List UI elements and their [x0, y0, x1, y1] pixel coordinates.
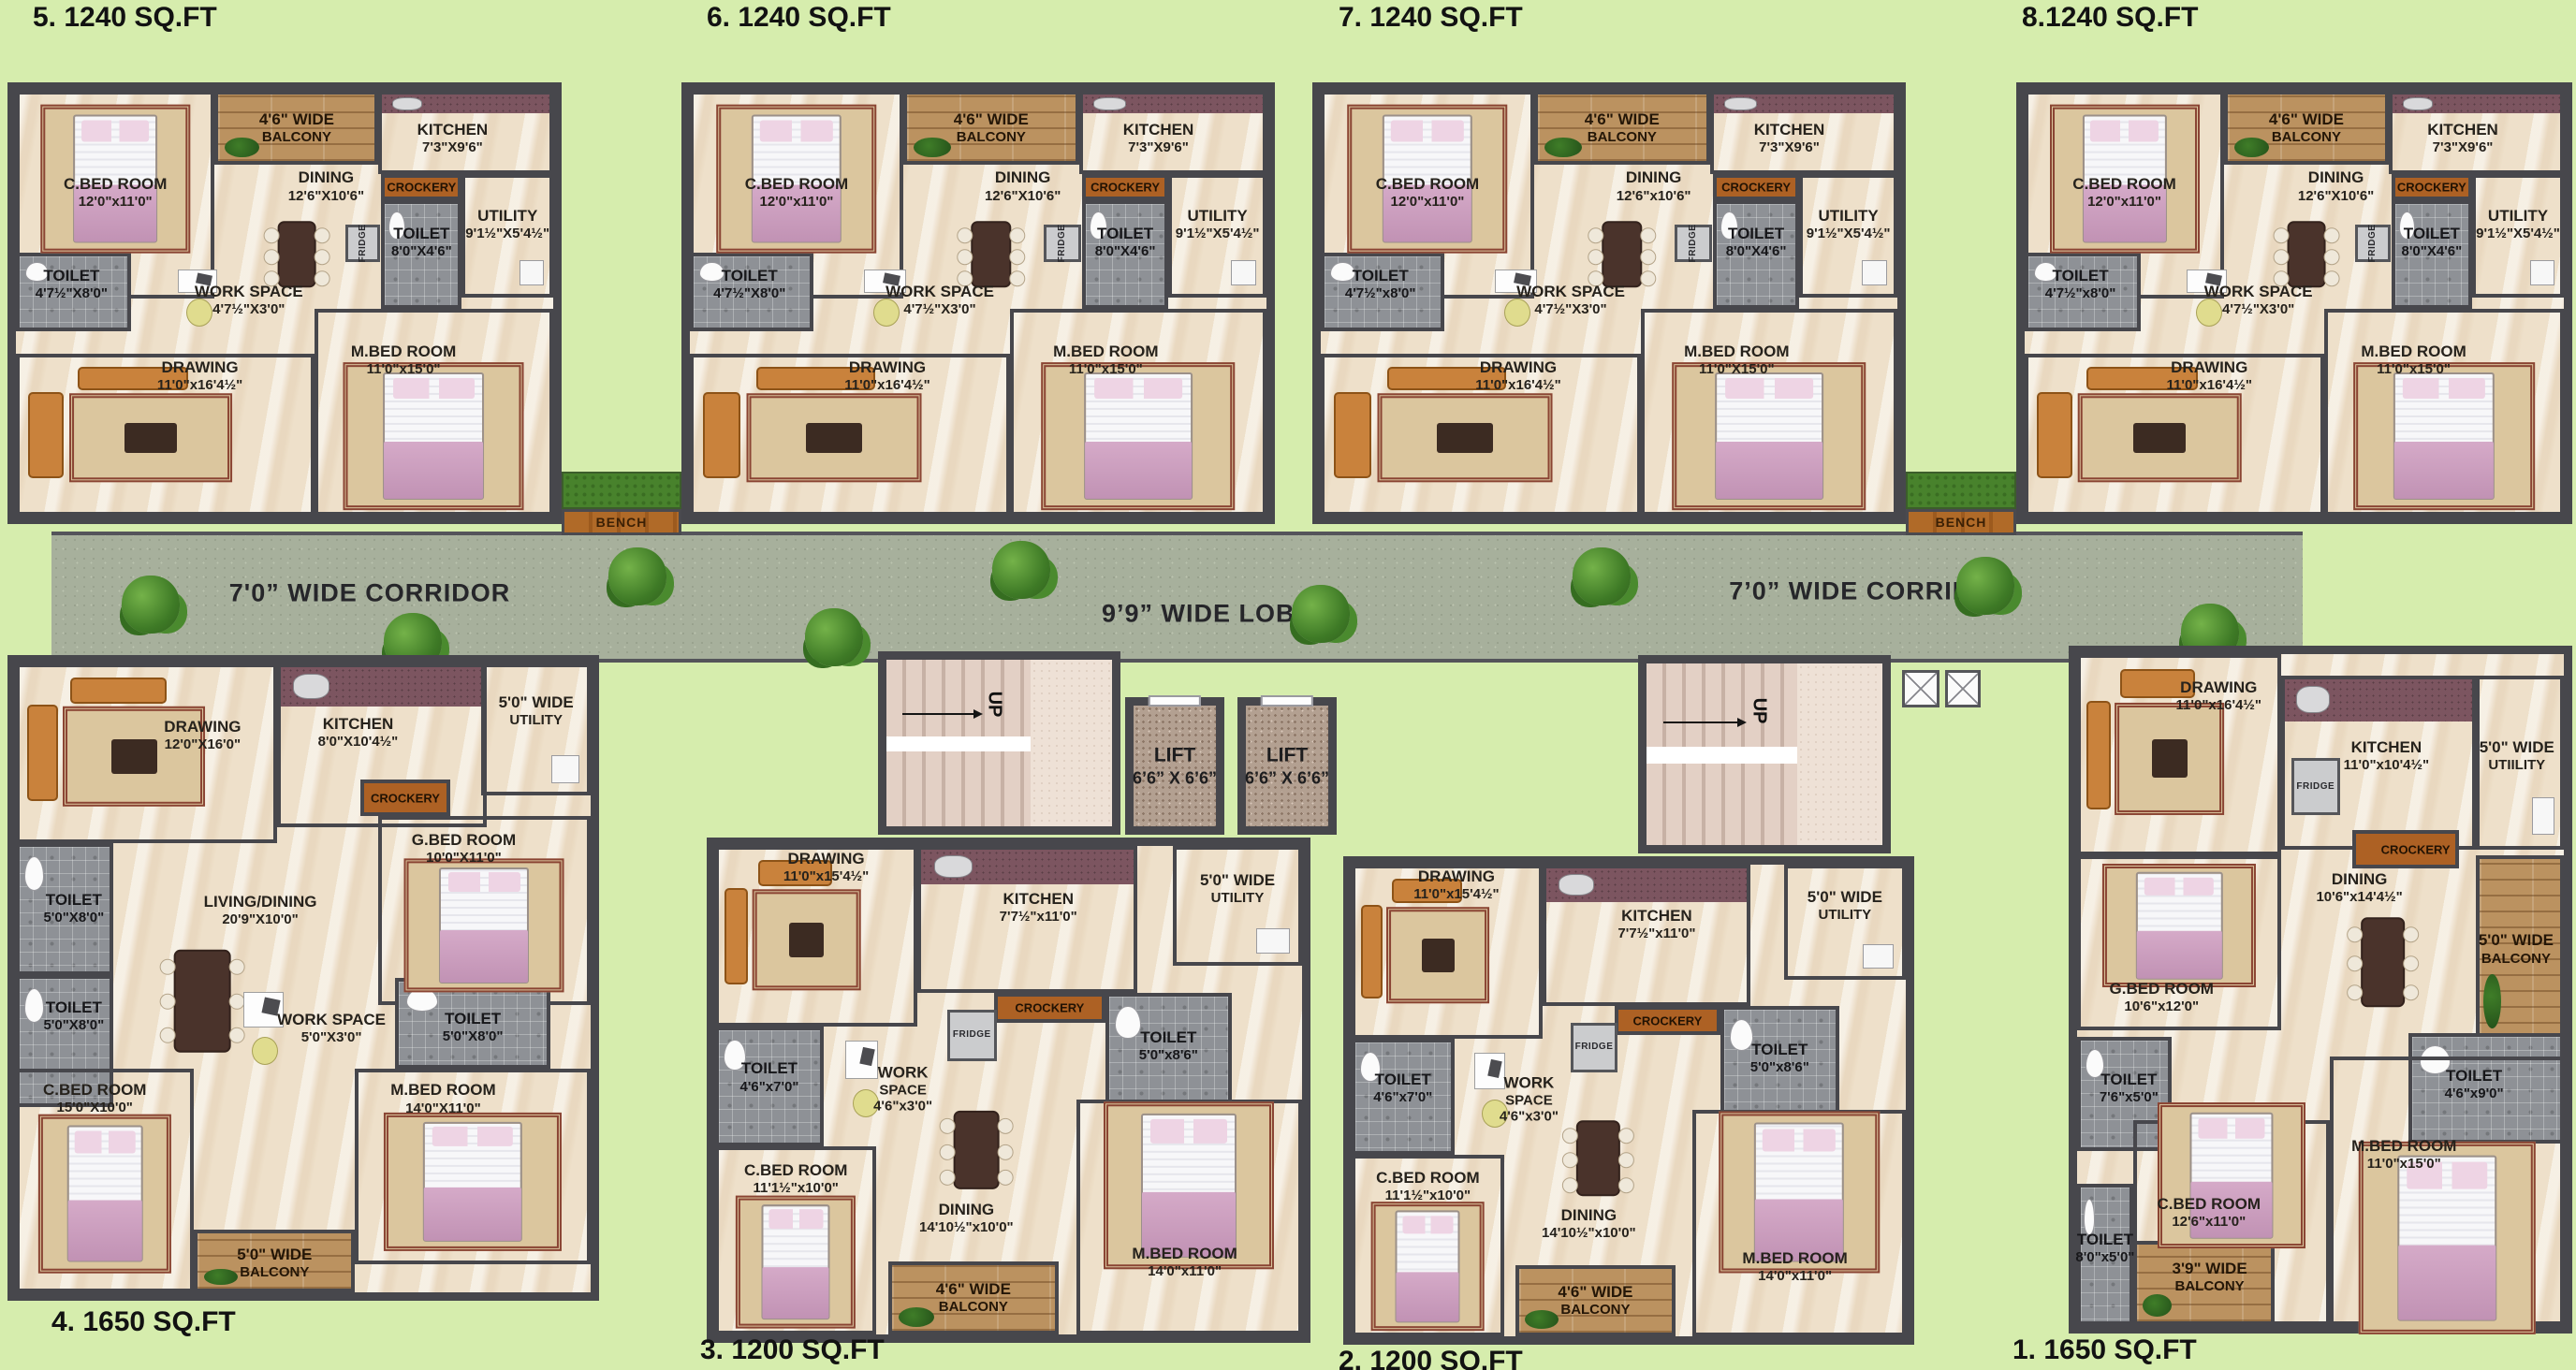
work-space-line-2: 5'0"X3'0": [277, 1030, 386, 1047]
g-bed-room-line-1: G.BED ROOM: [2110, 980, 2214, 998]
chair: [940, 1144, 956, 1160]
chair: [2323, 270, 2339, 286]
toilet-2-label: TOILET4'6"x9'0": [2445, 1067, 2504, 1102]
chair: [1562, 1177, 1578, 1193]
toilet-left-label: TOILET4'7½"x8'0": [1345, 267, 1416, 302]
unit-5-utility: UTILITY9'1½"X5'4½": [461, 174, 553, 298]
toilet-1-line-1: TOILET: [2100, 1071, 2159, 1089]
kitchen-line-2: 7'3"X9'6": [417, 139, 489, 156]
coffee-table: [111, 739, 157, 774]
toilet-left-label: TOILET4'7½"x8'0": [2045, 267, 2116, 302]
chair: [1588, 227, 1603, 243]
crockery-line-1: CROCKERY: [1632, 1013, 1702, 1027]
dining-table: [1576, 1120, 1619, 1197]
fridge-line-1: FRIDGE: [1575, 1042, 1614, 1053]
drawing-line-1: DRAWING: [164, 719, 241, 737]
balcony-label: 4'6" WIDEBALCONY: [2269, 110, 2344, 146]
utility-label: 5'0" WIDEUTILITY: [1808, 889, 1882, 925]
kitchen-label: KITCHEN7'7½"x11'0": [1000, 891, 1077, 926]
m-bed-room-line-1: M.BED ROOM: [1053, 342, 1158, 361]
balcony-1-line-2: BALCONY: [2479, 951, 2554, 968]
kitchen-line-2: 7'3"X9'6": [1123, 139, 1194, 156]
m-bed-room-line-2: 14'0"x11'0": [1132, 1263, 1237, 1280]
unit-2-utility: 5'0" WIDEUTILITY: [1784, 865, 1906, 980]
sofa: [28, 392, 63, 478]
toilet-2-line-2: 4'6"x9'0": [2445, 1086, 2504, 1102]
dining-line-2: 12'6"X10'6": [2298, 188, 2374, 205]
unit-5-crockery: CROCKERY: [381, 174, 461, 199]
fridge-line-1: FRIDGE: [2296, 781, 2334, 793]
c-bed-room-line-2: 12'0"x11'0": [2072, 194, 2176, 211]
dining-line-2: 14'10½"x10'0": [1542, 1225, 1636, 1242]
toilet-2-line-1: TOILET: [2445, 1067, 2504, 1086]
unit-8-toilet-left: TOILET4'7½"x8'0": [2025, 253, 2141, 331]
toilet-3-line-2: 8'0"x5'0": [2075, 1249, 2134, 1266]
crockery-line-1: CROCKERY: [1015, 1000, 1084, 1014]
toilet-left-line-2: 4'6"x7'0": [739, 1079, 798, 1096]
coffee-table: [1437, 423, 1493, 454]
drawing-line-1: DRAWING: [844, 358, 929, 377]
crockery-line-1: CROCKERY: [1721, 180, 1791, 194]
balcony-label: 4'6" WIDEBALCONY: [954, 110, 1029, 146]
lift-size: 6’6” X 6’6”: [1133, 767, 1217, 789]
bed: [762, 1204, 830, 1320]
kitchen-line-1: KITCHEN: [1754, 121, 1825, 139]
grass-strip: [1906, 472, 2016, 509]
sofa: [27, 705, 58, 801]
lift-door: [1261, 695, 1313, 707]
c-bed-room-line-2: 11'1½"x10'0": [744, 1180, 848, 1197]
toilet-right-line-1: TOILET: [1750, 1041, 1809, 1059]
utility-label: UTILITY9'1½"X5'4½": [465, 207, 549, 242]
work-space-line-1: WORK SPACE: [195, 283, 303, 301]
balcony-line-2: BALCONY: [1585, 129, 1660, 146]
balcony-line-2: BALCONY: [936, 1299, 1011, 1316]
kitchen-label: KITCHEN7'3"X9'6": [1754, 121, 1825, 156]
work-space-line-1: WORK SPACE: [1516, 283, 1625, 301]
bed: [423, 1122, 522, 1242]
kitchen-label: KITCHEN7'3"X9'6": [2427, 121, 2498, 156]
chair: [997, 1170, 1013, 1186]
bed: [2397, 1155, 2495, 1320]
toilet-3-line-1: TOILET: [2075, 1231, 2134, 1249]
g-bed-room-line-1: G.BED ROOM: [412, 831, 516, 850]
m-bed-room-line-2: 11'0"x15'0": [1053, 361, 1158, 378]
balcony-line-1: 5'0" WIDE: [237, 1246, 312, 1264]
tree-icon: [608, 547, 666, 605]
dining-label: DINING12'6"X10'6": [985, 169, 1061, 205]
utility-line-2: 9'1½"X5'4½": [465, 226, 549, 242]
drawing-line-2: 11'0"x16'4½": [157, 377, 242, 394]
work-space-line-1: WORK SPACE: [2204, 283, 2313, 301]
drawing-line-2: 11'0"x16'4½": [1475, 377, 1560, 394]
drawing-label: DRAWING11'0"x16'4½": [157, 358, 242, 394]
chair: [2347, 926, 2363, 942]
floor-plan-canvas: 7'0” WIDE CORRIDOR 9’9” WIDE LOBBY 7’0” …: [0, 0, 2576, 1370]
dining-label: DINING14'10½"x10'0": [919, 1201, 1014, 1236]
dining-table: [2361, 918, 2406, 1007]
toilet-left-label: TOILET4'7½"X8'0": [713, 267, 785, 302]
g-bed-room-line-2: 10'6"x12'0": [2110, 998, 2214, 1015]
tree-icon: [122, 576, 180, 634]
unit-7-utility: UTILITY9'1½"X5'4½": [1799, 174, 1897, 298]
unit-8-drawing: DRAWING11'0"x16'4½": [2025, 354, 2324, 516]
chair: [160, 993, 176, 1009]
toilet-right-line-1: TOILET: [1139, 1028, 1198, 1047]
fridge-label: FRIDGE: [953, 1029, 991, 1041]
sofa: [70, 678, 167, 704]
m-bed-room-line-1: M.BED ROOM: [2361, 342, 2466, 361]
toilet-left-line-2: 4'7½"X8'0": [713, 285, 785, 302]
chair: [1618, 1153, 1634, 1169]
unit-3-toilet-left: TOILET4'6"x7'0": [715, 1027, 824, 1146]
toilet-top-line-1: TOILET: [1095, 225, 1156, 243]
drawing-line-1: DRAWING: [157, 358, 242, 377]
m-bed-room-label: M.BED ROOM14'0"x11'0": [1132, 1245, 1237, 1280]
dining-line-2: 12'6"x10'6": [1617, 188, 1691, 205]
drawing-label: DRAWING11'0"x15'4½": [783, 850, 869, 885]
m-bed-room-label: M.BED ROOM14'0"X11'0": [390, 1082, 495, 1117]
lift-1-label: LIFT 6’6” X 6’6”: [1133, 743, 1217, 789]
bed: [1084, 372, 1193, 500]
toilet-left-line-1: TOILET: [1373, 1071, 1432, 1089]
toilet-top-line-1: TOILET: [2401, 225, 2462, 243]
unit-4: DRAWING12'0"X16'0"KITCHEN8'0"X10'4½"5'0"…: [7, 655, 599, 1301]
balcony-line-2: BALCONY: [237, 1265, 312, 1282]
crockery-label: CROCKERY: [2397, 180, 2466, 194]
utility-line-2: UTIILITY: [2480, 757, 2554, 774]
unit-5-toilet-top: TOILET8'0"X4'6": [381, 200, 461, 309]
balcony-line-1: 4'6" WIDE: [936, 1280, 1011, 1299]
unit-6-toilet-top: TOILET8'0"X4'6": [1082, 200, 1168, 309]
chair: [1010, 270, 1026, 286]
unit-1-balcony-1: 5'0" WIDEBALCONY: [2476, 855, 2564, 1043]
drawing-label: DRAWING11'0"x16'4½": [844, 358, 929, 394]
drawing-line-2: 11'0"x15'4½": [783, 868, 869, 885]
utility-line-1: 5'0" WIDE: [2480, 738, 2554, 757]
unit-7-m-bed-room: M.BED ROOM11'0"X15'0": [1641, 309, 1897, 516]
kitchen-label: KITCHEN11'0"x10'4½": [2344, 738, 2429, 774]
unit-1-dining: DINING10'6"x14'4½": [2281, 855, 2476, 1050]
toilet-top-label: TOILET8'0"X4'6": [1095, 225, 1156, 260]
fridge-label: FRIDGE: [2367, 225, 2378, 263]
m-bed-room-line-2: 11'0"x15'0": [2361, 361, 2466, 378]
toilet-top-line-2: 8'0"X4'6": [2401, 243, 2462, 260]
chair: [160, 959, 176, 975]
lift-2-label: LIFT 6’6” X 6’6”: [1245, 743, 1329, 789]
toilet-top-line-2: 8'0"X4'6": [1726, 243, 1787, 260]
kitchen-line-2: 8'0"X10'4½": [318, 734, 399, 751]
unit-3-balcony: 4'6" WIDEBALCONY: [888, 1261, 1059, 1334]
unit-6: C.BED ROOM12'0"x11'0"4'6" WIDEBALCONYKIT…: [681, 82, 1275, 524]
unit-6-m-bed-room: M.BED ROOM11'0"x15'0": [1010, 309, 1266, 516]
utility-label: 5'0" WIDEUTILITY: [499, 693, 574, 729]
balcony-label: 4'6" WIDEBALCONY: [1585, 110, 1660, 146]
dining-line-1: DINING: [919, 1201, 1014, 1219]
bench-label: BENCH: [596, 515, 648, 530]
fridge-line-1: FRIDGE: [358, 225, 369, 263]
work-space-label: WORK SPACE4'7½"X3'0": [2204, 283, 2313, 318]
unit-3-utility: 5'0" WIDEUTILITY: [1173, 846, 1302, 966]
dining-line-1: DINING: [2298, 169, 2374, 188]
fridge-label: FRIDGE: [2296, 781, 2334, 793]
toilet-left-line-2: 4'7½"X8'0": [36, 285, 108, 302]
living-dining-label: LIVING/DINING20'9"X10'0": [204, 893, 317, 928]
unit-6-drawing: DRAWING11'0"x16'4½": [690, 354, 1010, 516]
toilet-top-label: TOILET8'0"X4'6": [391, 225, 452, 260]
drawing-line-1: DRAWING: [1413, 867, 1499, 886]
toilet-left-line-1: TOILET: [36, 267, 108, 285]
c-bed-room-line-1: C.BED ROOM: [1376, 175, 1480, 194]
up-arrow-icon: [1663, 721, 1739, 723]
toilet-2-line-1: TOILET: [43, 998, 104, 1017]
g-bed-room-label: G.BED ROOM10'6"x12'0": [2110, 980, 2214, 1015]
unit-4-drawing: DRAWING12'0"X16'0": [16, 663, 277, 843]
dining-line-1: DINING: [1542, 1206, 1636, 1225]
drawing-line-1: DRAWING: [783, 850, 869, 868]
balcony-1-line-1: 5'0" WIDE: [2479, 932, 2554, 951]
toilet-right-line-2: 5'0"x8'6": [1750, 1059, 1809, 1076]
balcony-line-2: BALCONY: [2269, 129, 2344, 146]
unit-1-utility: 5'0" WIDEUTIILITY: [2476, 676, 2564, 850]
work-space-line-2: 4'7½"X3'0": [195, 301, 303, 318]
drawing-label: DRAWING11'0"x15'4½": [1413, 867, 1499, 903]
up-arrow-icon: [902, 713, 974, 715]
tree-icon: [992, 541, 1050, 599]
work-space-line-1: WORK SPACE: [277, 1012, 386, 1030]
utility-label: UTILITY9'1½"X5'4½": [1176, 207, 1260, 242]
dining-line-2: 10'6"x14'4½": [2316, 890, 2402, 907]
toilet-1-line-1: TOILET: [43, 891, 104, 910]
sofa: [703, 392, 740, 478]
bed: [439, 867, 529, 984]
utility-line-2: 9'1½"X5'4½": [1807, 226, 1891, 242]
unit-6-balcony: 4'6" WIDEBALCONY: [903, 91, 1079, 165]
unit-1-title: 1. 1650 SQ.FT: [2012, 1334, 2197, 1366]
balcony-2-line-1: 3'9" WIDE: [2173, 1260, 2247, 1278]
fridge-line-1: FRIDGE: [1688, 225, 1699, 263]
chair: [1618, 1128, 1634, 1144]
utility-line-1: UTILITY: [2476, 207, 2560, 226]
stair-landing-strip: [1647, 747, 1797, 763]
unit-4-m-bed-room: M.BED ROOM14'0"X11'0": [355, 1069, 591, 1263]
balcony-1-label: 5'0" WIDEBALCONY: [2479, 932, 2554, 968]
balcony-2-label: 3'9" WIDEBALCONY: [2173, 1260, 2247, 1295]
tree-icon: [1956, 557, 2014, 615]
chair: [1010, 249, 1026, 265]
work-space-line-3: 4'6"x3'0": [1500, 1109, 1559, 1126]
toilet-right-label: TOILET5'0"x8'6": [1750, 1041, 1809, 1076]
staircase-right: UP: [1638, 655, 1891, 853]
living-dining-line-2: 20'9"X10'0": [204, 911, 317, 928]
chair: [997, 1144, 1013, 1160]
unit-3-kitchen: KITCHEN7'7½"x11'0": [917, 846, 1137, 993]
unit-7-drawing: DRAWING11'0"x16'4½": [1321, 354, 1641, 516]
unit-2: DRAWING11'0"x15'4½"KITCHEN7'7½"x11'0"5'0…: [1343, 856, 1914, 1345]
utility-line-1: UTILITY: [465, 207, 549, 226]
toilet-1-line-2: 7'6"x5'0": [2100, 1089, 2159, 1106]
kitchen-line-1: KITCHEN: [1123, 121, 1194, 139]
chair: [940, 1170, 956, 1186]
dining-line-1: DINING: [288, 169, 364, 188]
kitchen-line-2: 7'7½"x11'0": [1000, 910, 1077, 926]
work-space-label: WORKSPACE4'6"x3'0": [873, 1063, 932, 1115]
unit-8-balcony: 4'6" WIDEBALCONY: [2224, 91, 2389, 165]
unit-6-toilet-left: TOILET4'7½"X8'0": [690, 253, 813, 331]
utility-line-2: UTILITY: [1200, 890, 1275, 907]
m-bed-room-label: M.BED ROOM11'0"x15'0": [2361, 342, 2466, 378]
m-bed-room-line-1: M.BED ROOM: [390, 1082, 495, 1100]
utility-line-1: 5'0" WIDE: [1808, 889, 1882, 908]
chair: [1641, 249, 1657, 265]
chair: [997, 1118, 1013, 1134]
coffee-table: [806, 423, 862, 454]
work-space-label: WORK SPACE4'7½"X3'0": [195, 283, 303, 318]
lift-1: LIFT 6’6” X 6’6”: [1125, 697, 1224, 835]
chair: [1010, 227, 1026, 243]
dining-line-2: 14'10½"x10'0": [919, 1219, 1014, 1236]
dining-label: DINING10'6"x14'4½": [2316, 871, 2402, 907]
coffee-table: [789, 923, 824, 957]
fridge-label: FRIDGE: [1688, 225, 1699, 263]
unit-1-drawing: DRAWING11'0"x16'4½": [2077, 654, 2281, 855]
utility-line-2: 9'1½"X5'4½": [2476, 226, 2560, 242]
bed: [67, 1125, 143, 1262]
lift-word: LIFT: [1133, 743, 1217, 767]
toilet-left-label: TOILET4'6"x7'0": [1373, 1071, 1432, 1106]
fridge-line-1: FRIDGE: [953, 1029, 991, 1041]
balcony-line-2: BALCONY: [954, 129, 1029, 146]
dining-label: DINING12'6"X10'6": [2298, 169, 2374, 205]
chair: [2273, 227, 2289, 243]
utility-line-1: UTILITY: [1176, 207, 1260, 226]
tree-icon: [1292, 585, 1350, 643]
unit-8-toilet-top: TOILET8'0"X4'6": [2392, 200, 2472, 309]
chair: [2403, 926, 2419, 942]
chair: [160, 1027, 176, 1043]
unit-1-toilet-3: TOILET8'0"x5'0": [2077, 1184, 2133, 1325]
chair: [2403, 955, 2419, 971]
c-bed-room-label: C.BED ROOM12'0"x11'0": [745, 175, 849, 211]
work-space-line-2: SPACE: [873, 1082, 932, 1099]
crockery-label: CROCKERY: [371, 791, 440, 805]
chair: [264, 249, 280, 265]
unit-5: C.BED ROOM12'0"x11'0"4'6" WIDEBALCONYKIT…: [7, 82, 562, 524]
unit-2-c-bed-room: C.BED ROOM11'1½"x10'0": [1352, 1155, 1504, 1336]
work-space-line-1: WORK SPACE: [885, 283, 994, 301]
lift-2: LIFT 6’6” X 6’6”: [1237, 697, 1337, 835]
toilet-1-label: TOILET5'0"X8'0": [43, 891, 104, 926]
m-bed-room-line-2: 11'0"X15'0": [1684, 361, 1789, 378]
unit-2-m-bed-room: M.BED ROOM14'0"x11'0": [1692, 1110, 1906, 1336]
sofa: [2086, 701, 2110, 809]
c-bed-room-label: C.BED ROOM15'0"X10'0": [43, 1081, 147, 1116]
work-space-line-2: SPACE: [1500, 1092, 1559, 1109]
unit-7-title: 7. 1240 SQ.FT: [1339, 2, 1523, 34]
unit-7-kitchen: KITCHEN7'3"X9'6": [1710, 91, 1897, 174]
m-bed-room-line-2: 11'0"x15'0": [351, 361, 456, 378]
fridge-line-1: FRIDGE: [1057, 225, 1068, 263]
toilet-left-line-1: TOILET: [713, 267, 785, 285]
chair: [314, 249, 329, 265]
kitchen-line-2: 7'7½"x11'0": [1617, 925, 1695, 942]
fridge-label: FRIDGE: [1575, 1042, 1614, 1053]
unit-7-balcony: 4'6" WIDEBALCONY: [1534, 91, 1710, 165]
m-bed-room-line-2: 14'0"X11'0": [390, 1100, 495, 1117]
g-bed-room-label: G.BED ROOM10'0"X11'0": [412, 831, 516, 867]
stair-landing: [1797, 663, 1882, 845]
c-bed-room-line-2: 12'0"x11'0": [1376, 194, 1480, 211]
chair: [2347, 984, 2363, 1000]
unit-6-fridge: FRIDGE: [1044, 225, 1081, 262]
work-space-line-1: WORK: [873, 1063, 932, 1082]
kitchen-label: KITCHEN7'3"X9'6": [1123, 121, 1194, 156]
work-space-line-3: 4'6"x3'0": [873, 1099, 932, 1115]
grass-strip: [562, 472, 681, 509]
crockery-label: CROCKERY: [1632, 1013, 1702, 1027]
c-bed-room-line-2: 15'0"X10'0": [43, 1100, 147, 1116]
drawing-label: DRAWING11'0"x16'4½": [2176, 679, 2261, 715]
utility-line-1: UTILITY: [1807, 207, 1891, 226]
duct-shaft: [1945, 670, 1981, 707]
unit-2-balcony: 4'6" WIDEBALCONY: [1515, 1265, 1676, 1336]
unit-7: C.BED ROOM12'0"x11'0"4'6" WIDEBALCONYKIT…: [1312, 82, 1906, 524]
unit-8-kitchen: KITCHEN7'3"X9'6": [2389, 91, 2564, 174]
c-bed-room-line-1: C.BED ROOM: [745, 175, 849, 194]
c-bed-room-line-2: 12'0"x11'0": [64, 194, 168, 211]
coffee-table: [2133, 423, 2186, 454]
stair-landing-strip: [886, 736, 1031, 751]
lift-size: 6’6” X 6’6”: [1245, 767, 1329, 789]
unit-3-crockery: CROCKERY: [994, 993, 1105, 1023]
unit-3-drawing: DRAWING11'0"x15'4½": [715, 846, 917, 1027]
unit-3-dining: DINING14'10½"x10'0": [876, 1090, 1076, 1261]
coffee-table: [2152, 739, 2188, 778]
chair: [1588, 249, 1603, 265]
chair: [314, 227, 329, 243]
living-dining-line-1: LIVING/DINING: [204, 893, 317, 911]
drawing-label: DRAWING12'0"X16'0": [164, 719, 241, 754]
toilet-right-label: TOILET5'0"x8'6": [1139, 1028, 1198, 1064]
toilet-3-label: TOILET8'0"x5'0": [2075, 1231, 2134, 1266]
m-bed-room-line-1: M.BED ROOM: [2351, 1137, 2456, 1156]
unit-4-toilet-1: TOILET5'0"X8'0": [16, 843, 113, 975]
unit-2-crockery: CROCKERY: [1615, 1006, 1720, 1035]
dining-table: [971, 221, 1011, 288]
unit-1: DRAWING11'0"x16'4½"KITCHEN11'0"x10'4½"5'…: [2069, 646, 2572, 1334]
unit-6-title: 6. 1240 SQ.FT: [707, 2, 891, 34]
chair: [264, 227, 280, 243]
toilet-2-label: TOILET5'0"X8'0": [43, 998, 104, 1034]
unit-3-title: 3. 1200 SQ.FT: [700, 1334, 885, 1366]
toilet-top-line-1: TOILET: [391, 225, 452, 243]
chair: [940, 1118, 956, 1134]
unit-7-crockery: CROCKERY: [1713, 174, 1799, 199]
chair: [2347, 955, 2363, 971]
balcony-label: 4'6" WIDEBALCONY: [259, 110, 334, 146]
up-label: UP: [1748, 697, 1769, 723]
unit-5-balcony: 4'6" WIDEBALCONY: [214, 91, 378, 165]
crockery-label: CROCKERY: [1721, 180, 1791, 194]
corridor-left-label: 7'0” WIDE CORRIDOR: [229, 579, 510, 608]
coffee-table: [1422, 939, 1455, 972]
toilet-left-line-2: 4'7½"x8'0": [1345, 285, 1416, 302]
utility-line-2: UTILITY: [1808, 908, 1882, 925]
kitchen-line-1: KITCHEN: [318, 715, 399, 734]
desk-chair: [252, 1037, 278, 1065]
bed: [383, 372, 484, 500]
kitchen-line-2: 7'3"X9'6": [1754, 139, 1825, 156]
